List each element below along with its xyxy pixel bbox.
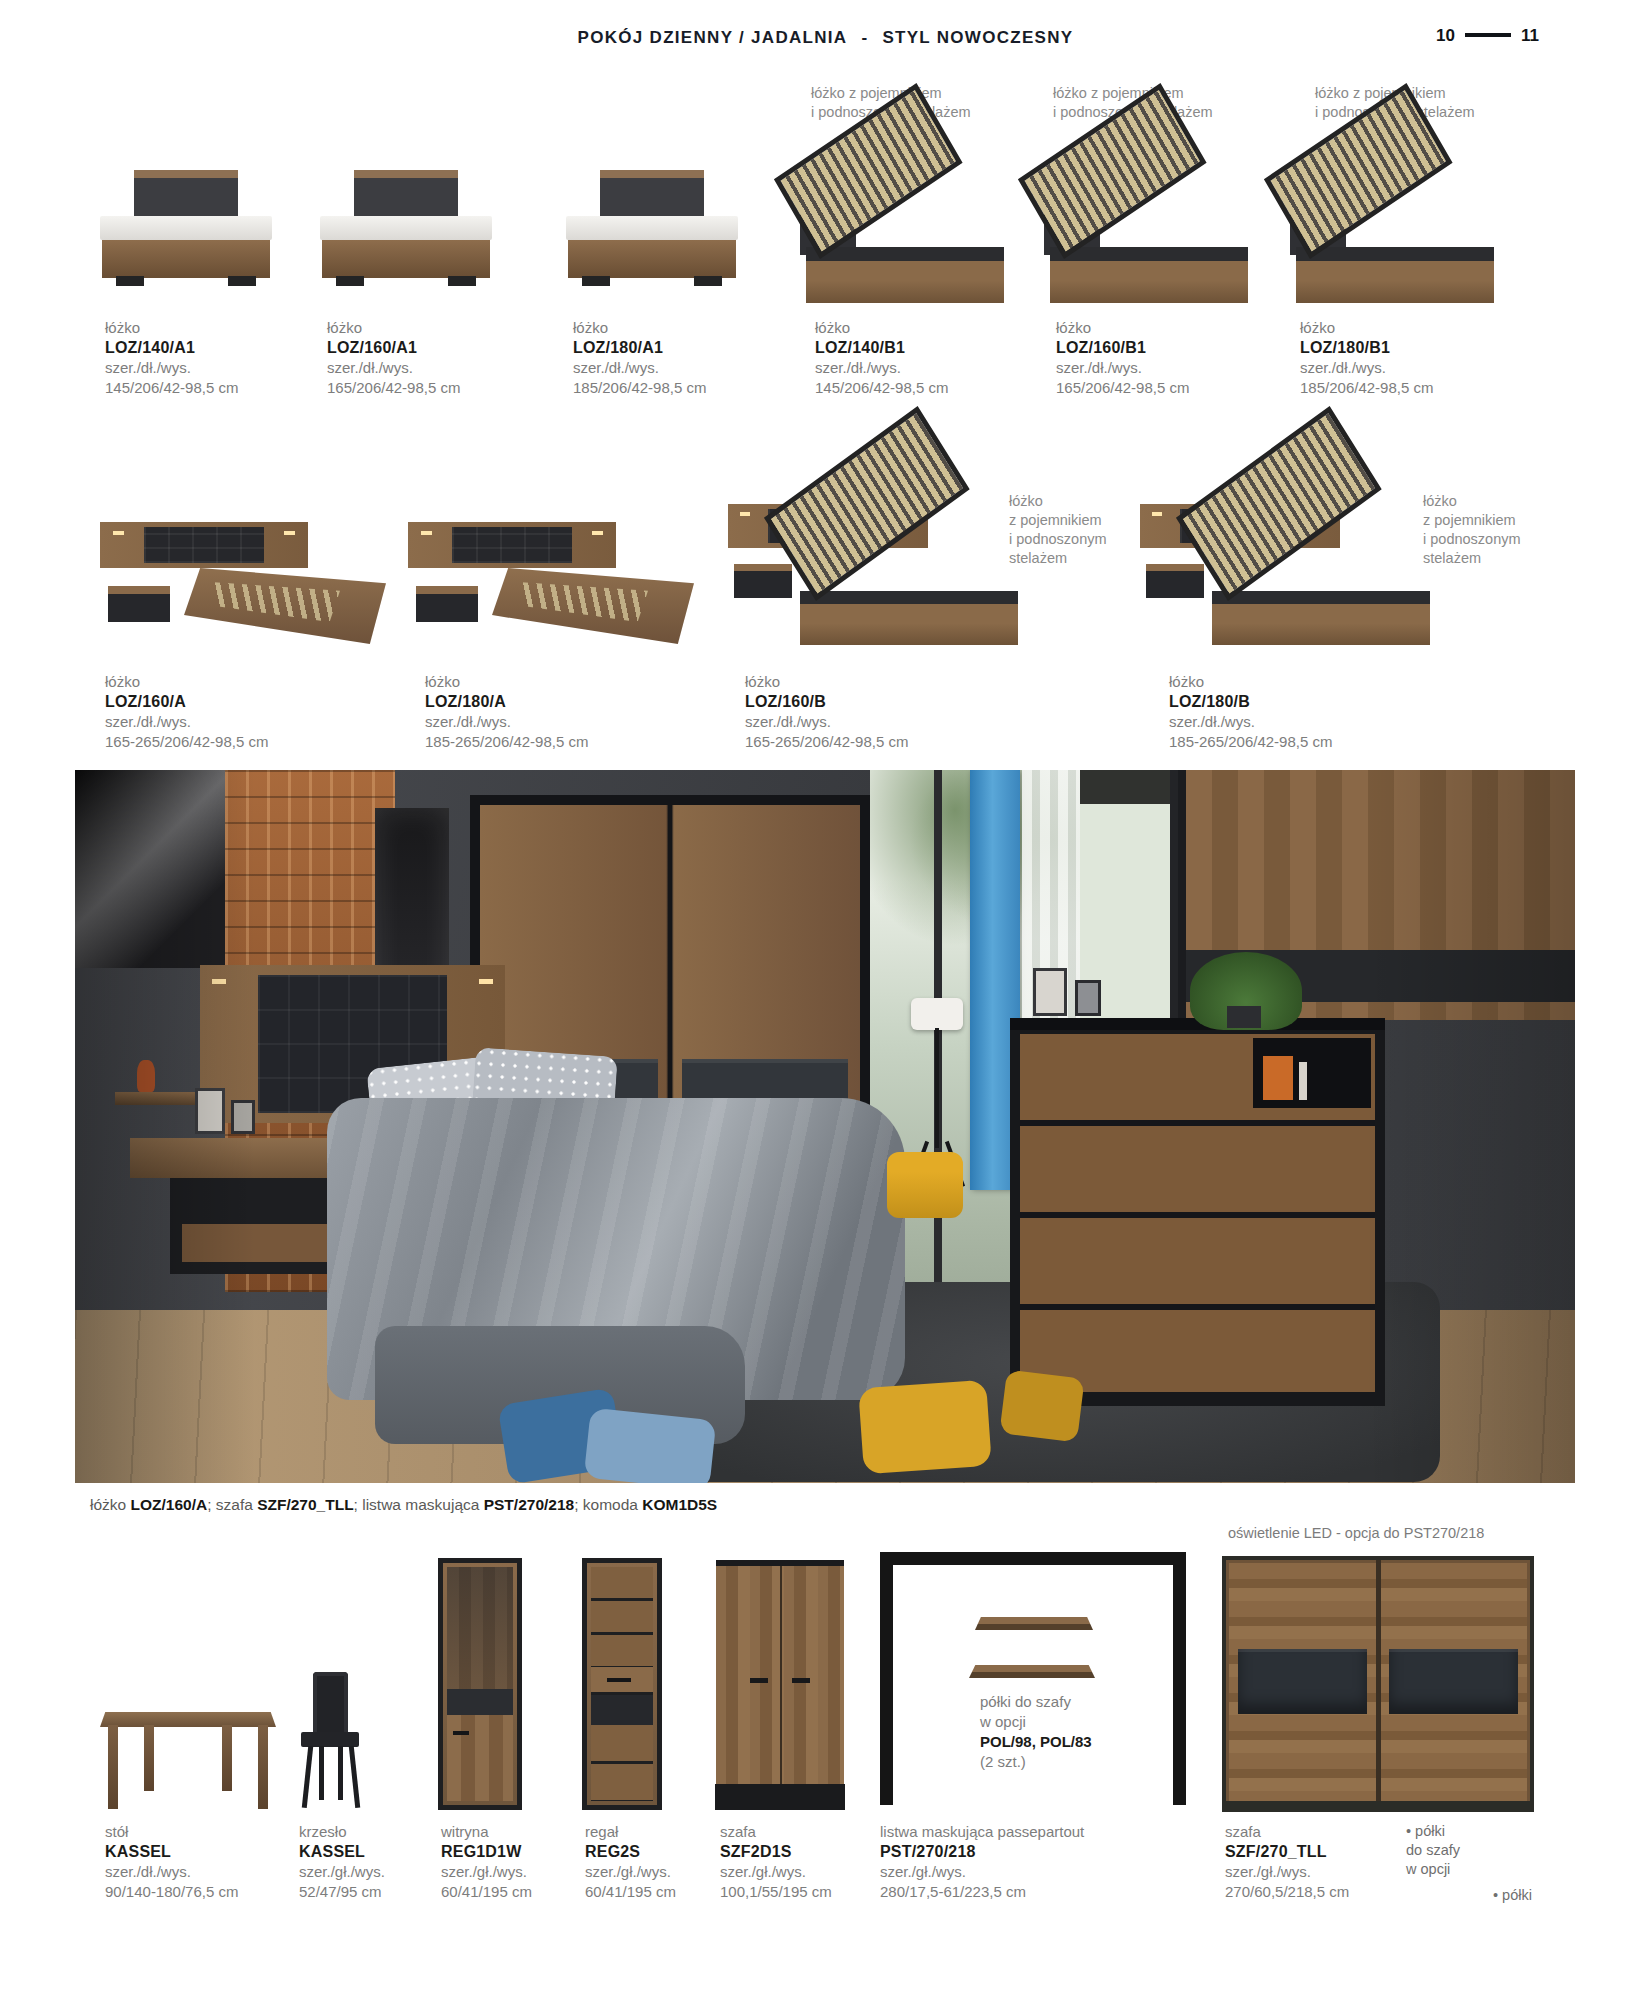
storage-box <box>806 247 1004 303</box>
display-cabinet-image-reg1d1w <box>438 1558 522 1810</box>
product-type: łóżko <box>105 318 238 338</box>
lift-caption-side-1: łóżko z pojemnikiem i podnoszonym stelaż… <box>1009 492 1107 568</box>
bed-image-loz160b1 <box>1042 108 1254 303</box>
product-code: LOZ/140/A1 <box>105 338 238 358</box>
wardrobe-image-szf2d1s <box>716 1560 844 1810</box>
product-label-reg2s: regał REG2S szer./gł./wys. 60/41/195 cm <box>585 1822 676 1902</box>
page-number-left: 10 <box>1436 26 1455 45</box>
handle <box>792 1678 810 1683</box>
page-numbers: 1011 <box>1436 26 1539 46</box>
product-label-loz140a1: łóżko LOZ/140/A1 szer./dł./wys. 145/206/… <box>105 318 238 398</box>
shelves-bullet: • półki <box>1493 1886 1532 1905</box>
photo-vignette <box>75 770 1575 1483</box>
bed-foot <box>116 276 144 286</box>
room-photo <box>75 770 1575 1483</box>
bed-image-loz160a1 <box>320 170 492 302</box>
led-light <box>284 531 295 535</box>
frame-shelves-note: półki do szafy w opcji POL/98, POL/83 (2… <box>980 1692 1092 1772</box>
product-label-loz180a1: łóżko LOZ/180/A1 szer./dł./wys. 185/206/… <box>573 318 706 398</box>
catalog-page: POKÓJ DZIENNY / JADALNIA-STYL NOWOCZESNY… <box>0 0 1651 2000</box>
led-light <box>113 531 124 535</box>
nightstand <box>734 564 792 598</box>
product-label-kassel-table: stół KASSEL szer./dł./wys. 90/140-180/76… <box>105 1822 238 1902</box>
product-label-loz180b1: łóżko LOZ/180/B1 szer./dł./wys. 185/206/… <box>1300 318 1433 398</box>
photo-caption: łóżko LOZ/160/A; szafa SZF/270_TLL; list… <box>90 1496 717 1514</box>
headboard <box>100 522 308 568</box>
handle <box>607 1678 631 1682</box>
product-label-szf270tll: szafa SZF/270_TLL szer./gł./wys. 270/60,… <box>1225 1822 1349 1902</box>
table-image-kassel <box>100 1712 276 1810</box>
led-option-note: oświetlenie LED - opcja do PST270/218 <box>1228 1524 1484 1543</box>
bed-image-loz180a <box>408 498 698 646</box>
bed-image-loz180a1 <box>566 170 738 302</box>
bed-base <box>102 240 270 278</box>
lift-caption-side-2: łóżko z pojemnikiem i podnoszonym stelaż… <box>1423 492 1521 568</box>
shelf-unit-image-reg2s <box>582 1558 662 1810</box>
dims-value: 145/206/42-98,5 cm <box>105 378 238 398</box>
shelf-pol-image <box>969 1665 1095 1678</box>
bed-image-loz140a1 <box>100 170 272 302</box>
upholstered-panel <box>144 527 264 563</box>
header-separator: - <box>861 28 868 47</box>
bed-foot <box>228 276 256 286</box>
product-label-kassel-chair: krzesło KASSEL szer./gł./wys. 52/47/95 c… <box>299 1822 385 1902</box>
product-label-loz160a1: łóżko LOZ/160/A1 szer./dł./wys. 165/206/… <box>327 318 460 398</box>
bed-image-loz140b1 <box>798 108 1010 303</box>
product-label-loz180a: łóżko LOZ/180/A szer./dł./wys. 185-265/2… <box>425 672 588 752</box>
page-number-divider <box>1465 33 1511 37</box>
bed-image-loz180b <box>1140 432 1430 647</box>
header-subtitle: STYL NOWOCZESNY <box>882 28 1073 47</box>
product-label-loz180b: łóżko LOZ/180/B szer./dł./wys. 185-265/2… <box>1169 672 1332 752</box>
handle <box>453 1731 469 1735</box>
product-label-loz160b1: łóżko LOZ/160/B1 szer./dł./wys. 165/206/… <box>1056 318 1189 398</box>
page-header: POKÓJ DZIENNY / JADALNIA-STYL NOWOCZESNY <box>0 28 1651 48</box>
bed-image-loz160a <box>100 498 390 646</box>
product-label-loz160a: łóżko LOZ/160/A szer./dł./wys. 165-265/2… <box>105 672 268 752</box>
lifted-slat-frame <box>764 406 970 601</box>
wardrobe-image-szf270tll <box>1222 1556 1534 1812</box>
product-label-reg1d1w: witryna REG1D1W szer./gł./wys. 60/41/195… <box>441 1822 532 1902</box>
lower-door <box>447 1715 513 1801</box>
header-title: POKÓJ DZIENNY / JADALNIA <box>578 28 848 47</box>
nightstand <box>108 586 170 622</box>
product-label-loz160b: łóżko LOZ/160/B szer./dł./wys. 165-265/2… <box>745 672 908 752</box>
bed-image-loz160b <box>728 432 1018 647</box>
glass-door <box>447 1567 513 1689</box>
dims-label: szer./dł./wys. <box>105 358 238 378</box>
product-label-loz140b1: łóżko LOZ/140/B1 szer./dł./wys. 145/206/… <box>815 318 948 398</box>
shelves-option-bullet: • półki do szafy w opcji <box>1406 1822 1460 1879</box>
headboard <box>134 170 238 220</box>
page-number-right: 11 <box>1521 26 1539 45</box>
chair-image-kassel <box>295 1672 367 1810</box>
mattress <box>100 216 272 240</box>
bed-image-loz180b1 <box>1288 108 1500 303</box>
shelf-pol-image <box>975 1617 1093 1630</box>
product-label-pst270218: listwa maskująca passepartout PST/270/21… <box>880 1822 1084 1902</box>
storage-box <box>800 591 1018 645</box>
product-label-szf2d1s: szafa SZF2D1S szer./gł./wys. 100,1/55/19… <box>720 1822 832 1902</box>
handle <box>750 1678 768 1683</box>
